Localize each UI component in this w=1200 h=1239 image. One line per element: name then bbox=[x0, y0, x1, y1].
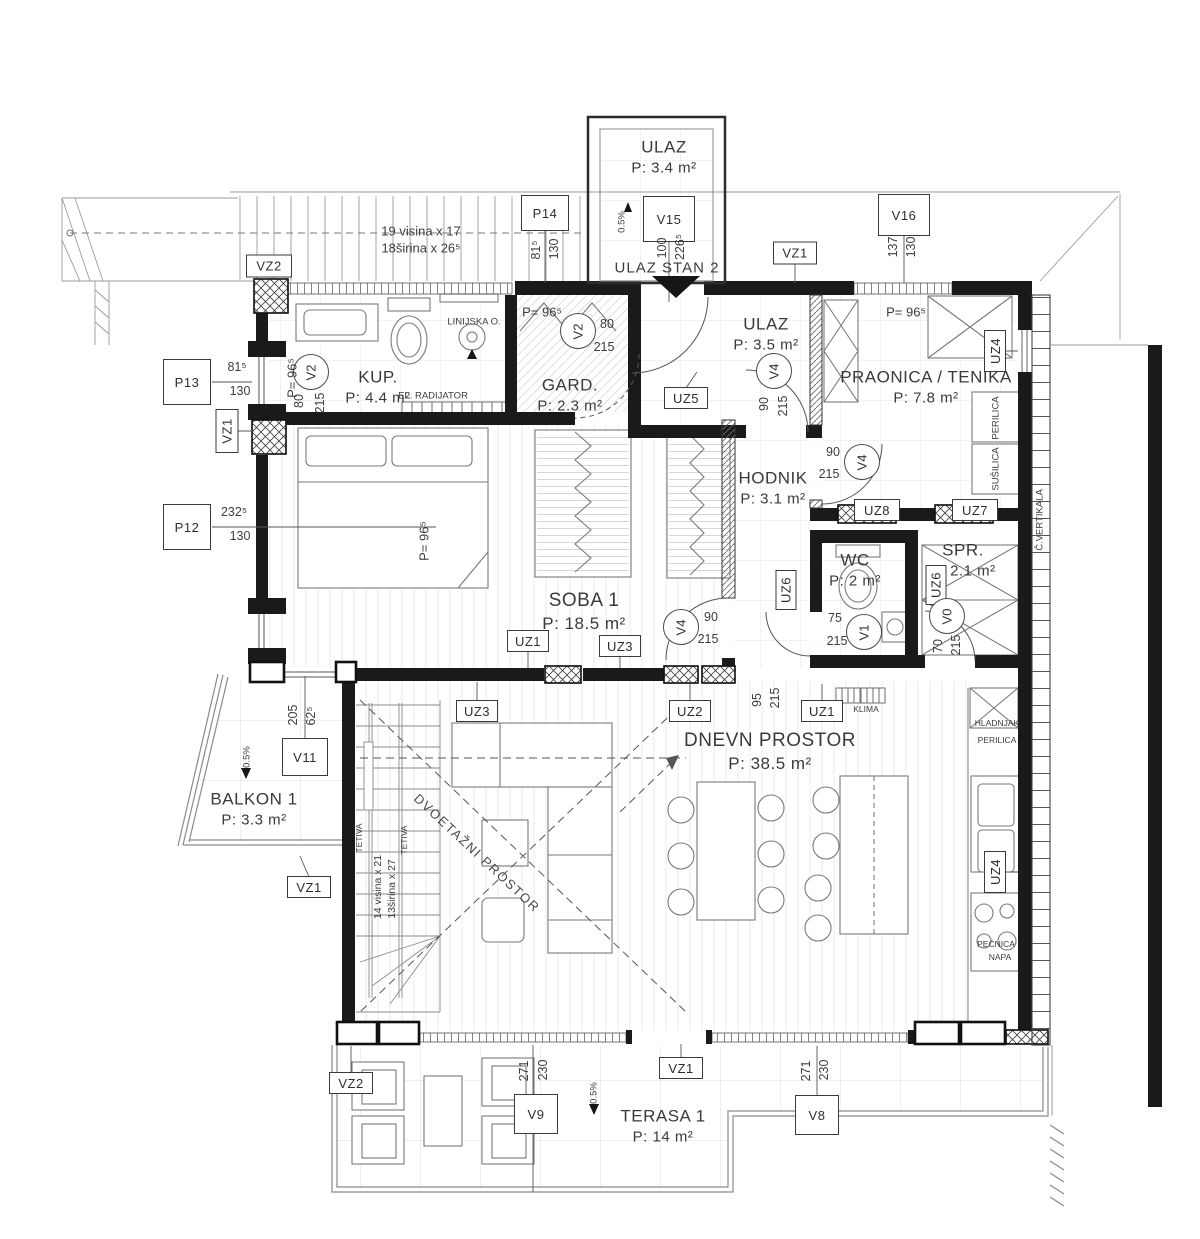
tag-uz5: UZ5 bbox=[664, 387, 708, 409]
top-stairs-note-2: 18širina x 26⁵ bbox=[381, 241, 460, 256]
dim-p13-w: 81⁵ bbox=[227, 360, 246, 374]
dim-v16-w: 137 bbox=[886, 237, 900, 258]
dim-p14-h: 130 bbox=[547, 239, 561, 260]
door-circle-v1-wc: V1 bbox=[846, 614, 882, 650]
dim-p14-w: 81⁵ bbox=[529, 240, 543, 259]
tag-vz2-top: VZ2 bbox=[246, 255, 292, 278]
shaft-label: Č.VERTIKALA bbox=[1035, 489, 1046, 551]
dim-v0-w: 70 bbox=[931, 639, 945, 653]
room-label-gard: GARD.P: 2.3 m² bbox=[537, 376, 602, 415]
dim-v4hod-h: 215 bbox=[819, 467, 840, 481]
entrance-arrow bbox=[652, 276, 700, 298]
tag-p14: P14 bbox=[521, 195, 569, 231]
dim-v9-h: 230 bbox=[536, 1060, 550, 1081]
dim-v2gard-h: 215 bbox=[594, 340, 615, 354]
room-label-ulaz-mid: ULAZP: 3.5 m² bbox=[733, 315, 798, 354]
dim-v15-h: 226⁵ bbox=[673, 234, 687, 260]
dim-v4soba-h: 215 bbox=[698, 632, 719, 646]
dim-v4soba-w: 90 bbox=[704, 610, 718, 624]
tag-v8: V8 bbox=[795, 1095, 839, 1135]
dryer-label: SUŠILICA bbox=[991, 447, 1002, 490]
vertical-shaft bbox=[1032, 295, 1148, 1116]
tag-uz2: UZ2 bbox=[669, 700, 711, 722]
dim-v9-w: 271 bbox=[517, 1061, 531, 1082]
linear-drain-label: LINIJSKA O. bbox=[447, 317, 500, 328]
main-stairs-note-2: 13širina x 27 bbox=[386, 859, 398, 919]
room-label-soba1: SOBA 1P: 18.5 m² bbox=[542, 590, 625, 634]
dim-v4hod-w: 90 bbox=[826, 445, 840, 459]
dim-v1-h: 215 bbox=[827, 634, 848, 648]
dim-v11-h: 205 bbox=[286, 705, 300, 726]
tag-uz1-soba: UZ1 bbox=[507, 630, 549, 652]
room-label-ulaz-top: ULAZP: 3.4 m² bbox=[631, 138, 696, 177]
klima-label: KLIMA bbox=[853, 704, 879, 714]
room-label-balkon: BALKON 1P: 3.3 m² bbox=[210, 790, 297, 829]
door-circle-v2-gard: V2 bbox=[560, 313, 596, 349]
entrance-label: ULAZ STAN 2 bbox=[615, 260, 720, 277]
dim-p13-h: 130 bbox=[230, 384, 251, 398]
tag-p13: P13 bbox=[163, 359, 211, 405]
hood-label: NAPA bbox=[989, 952, 1012, 962]
slope-vestibule: 0.5% bbox=[617, 211, 628, 233]
door-circle-v0-spr: V0 bbox=[929, 598, 965, 634]
door-circle-v4-soba: V4 bbox=[663, 609, 699, 645]
room-label-terasa: TERASA 1P: 14 m² bbox=[620, 1107, 705, 1146]
dim-v15-w: 100 bbox=[655, 238, 669, 259]
dim-p12-w: 232⁵ bbox=[221, 505, 247, 519]
dim-v4ulaz-w: 90 bbox=[757, 397, 771, 411]
slope-terasa: 0.5% bbox=[589, 1082, 600, 1104]
tag-vz1-top: VZ1 bbox=[773, 242, 817, 265]
parapet-left: P= 96⁵ bbox=[285, 358, 300, 398]
stringer-label-2: TETIVA bbox=[399, 825, 409, 854]
floor-plan: ULAZP: 3.4 m² KUP.P: 4.4 m² GARD.P: 2.3 … bbox=[0, 0, 1200, 1239]
tag-uz4-kitchen: UZ4 bbox=[984, 851, 1006, 893]
tag-v15: V15 bbox=[643, 196, 695, 242]
tag-uz7: UZ7 bbox=[952, 499, 998, 521]
tag-vz1-terasa: VZ1 bbox=[659, 1057, 703, 1079]
dim-v8-h: 230 bbox=[817, 1060, 831, 1081]
tag-uz8: UZ8 bbox=[854, 499, 900, 521]
main-stairs-note-1: 14 visina x 21 bbox=[372, 855, 384, 919]
door-circle-v4-hodnik: V4 bbox=[844, 444, 880, 480]
tag-uz4-top: UZ4 bbox=[984, 330, 1006, 372]
dishwasher-label: PERILICA bbox=[978, 735, 1017, 745]
top-stairs-note-1: 19 visina x 17 bbox=[381, 224, 461, 239]
room-label-praonica: PRAONICA / TENIKAP: 7.8 m² bbox=[840, 368, 1012, 407]
dim-opening-w: 95 bbox=[750, 693, 764, 707]
tag-v11: V11 bbox=[282, 738, 328, 776]
tag-vz1-balkon: VZ1 bbox=[287, 876, 331, 898]
dim-v0-h: 215 bbox=[949, 635, 963, 656]
tag-vz2-terasa: VZ2 bbox=[329, 1072, 373, 1094]
dim-v8-w: 271 bbox=[799, 1061, 813, 1082]
dim-opening-h: 215 bbox=[768, 688, 782, 709]
dim-v2gard-w: 80 bbox=[600, 317, 614, 331]
stringer-label-1: TETIVA bbox=[354, 823, 364, 852]
washer-label: PERILICA bbox=[991, 396, 1002, 439]
dim-v4ulaz-h: 215 bbox=[776, 396, 790, 417]
dim-v2kup-h: 215 bbox=[313, 393, 327, 414]
parapet-praonica: P= 96⁵ bbox=[886, 305, 926, 320]
tag-uz1-klima: UZ1 bbox=[801, 700, 843, 722]
oven-label: PEĆNICA bbox=[977, 939, 1015, 949]
room-label-hodnik: HODNIKP: 3.1 m² bbox=[738, 469, 807, 508]
tag-v9: V9 bbox=[514, 1094, 558, 1134]
slope-balkon: 0.5% bbox=[242, 746, 253, 768]
tag-vz1-left: VZ1 bbox=[216, 409, 239, 453]
fridge-label: HLADNJAK bbox=[975, 718, 1019, 728]
dim-v1-w: 75 bbox=[828, 611, 842, 625]
room-label-dnevni: DNEVN PROSTORP: 38.5 m² bbox=[684, 730, 856, 774]
tag-uz3-soba: UZ3 bbox=[599, 635, 641, 657]
dim-p12-h: 130 bbox=[230, 529, 251, 543]
door-circle-v4-ulaz: V4 bbox=[756, 353, 792, 389]
tag-uz3-dnevni: UZ3 bbox=[456, 700, 498, 722]
tag-p12: P12 bbox=[163, 504, 211, 550]
tag-v16: V16 bbox=[878, 194, 930, 236]
room-label-wc: WCP: 2 m² bbox=[829, 551, 881, 590]
dim-v16-h: 130 bbox=[904, 237, 918, 258]
parapet-p12: P= 96⁵ bbox=[417, 521, 432, 561]
radiator-label: EL. RADIJATOR bbox=[398, 391, 468, 402]
tag-uz6-hodnik: UZ6 bbox=[776, 570, 797, 610]
dim-v11-w: 62⁵ bbox=[304, 706, 318, 725]
parapet-top: P= 96⁵ bbox=[522, 305, 562, 320]
